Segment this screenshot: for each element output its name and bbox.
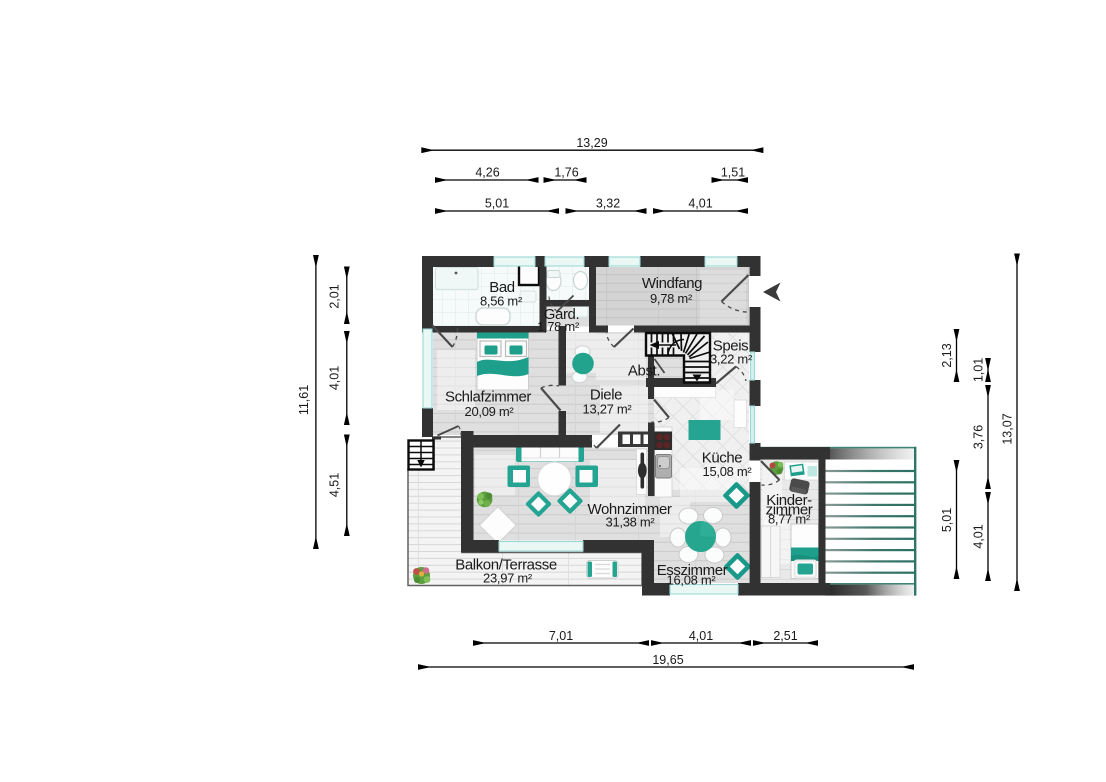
svg-text:4,51: 4,51 — [328, 473, 342, 497]
svg-text:4,01: 4,01 — [328, 366, 342, 390]
svg-text:3,32: 3,32 — [596, 197, 620, 211]
svg-text:9,78 m²: 9,78 m² — [650, 291, 693, 306]
svg-text:4,01: 4,01 — [688, 197, 712, 211]
svg-text:7,01: 7,01 — [549, 629, 573, 643]
svg-text:23,97 m²: 23,97 m² — [483, 571, 533, 586]
svg-text:2,01: 2,01 — [328, 284, 342, 308]
svg-text:13,07: 13,07 — [1001, 413, 1015, 444]
svg-text:8,77 m²: 8,77 m² — [768, 512, 811, 527]
svg-text:Schlafzimmer: Schlafzimmer — [445, 389, 531, 406]
svg-text:Windfang: Windfang — [642, 275, 702, 292]
svg-text:8,56 m²: 8,56 m² — [480, 294, 523, 309]
svg-text:13,27 m²: 13,27 m² — [583, 402, 633, 417]
svg-text:1,76: 1,76 — [554, 166, 578, 180]
svg-text:5,01: 5,01 — [485, 197, 509, 211]
svg-text:1,78 m²: 1,78 m² — [537, 319, 580, 334]
svg-text:Abst.: Abst. — [628, 363, 660, 380]
svg-text:11,61: 11,61 — [297, 385, 311, 415]
svg-text:2,13: 2,13 — [940, 343, 954, 367]
svg-text:5,01: 5,01 — [940, 508, 954, 532]
svg-text:3,22 m²: 3,22 m² — [710, 352, 753, 367]
svg-text:1,51: 1,51 — [721, 166, 745, 180]
svg-text:15,08 m²: 15,08 m² — [703, 464, 753, 479]
svg-text:4,01: 4,01 — [972, 524, 986, 548]
svg-text:13,29: 13,29 — [576, 136, 607, 150]
svg-text:16,08 m²: 16,08 m² — [667, 573, 717, 588]
svg-text:4,26: 4,26 — [475, 166, 499, 180]
svg-text:2,51: 2,51 — [773, 629, 797, 643]
svg-text:3,76: 3,76 — [972, 425, 986, 449]
svg-text:19,65: 19,65 — [652, 653, 683, 667]
svg-text:31,38 m²: 31,38 m² — [606, 515, 656, 530]
svg-text:1,01: 1,01 — [972, 358, 986, 382]
svg-text:20,09 m²: 20,09 m² — [465, 404, 515, 419]
svg-text:4,01: 4,01 — [689, 629, 713, 643]
